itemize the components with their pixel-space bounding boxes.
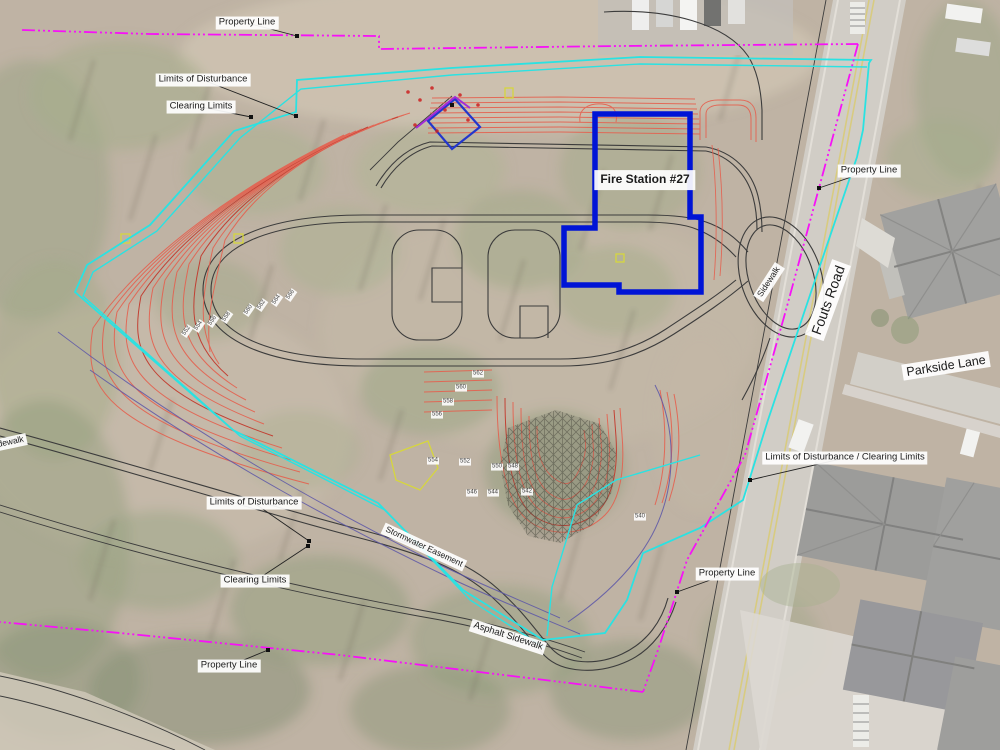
label-clearing-limits-s-anchor: [306, 544, 310, 548]
label-limits-of-disturbance-s-anchor: [307, 539, 311, 543]
label-property-line-e-anchor: [817, 186, 821, 190]
aerial-and-linework: [0, 0, 1000, 750]
label-property-line-top-anchor: [295, 34, 299, 38]
label-property-line-sw-anchor: [266, 648, 270, 652]
label-limits-of-disturbance-nw-anchor: [294, 114, 298, 118]
label-property-line-s-anchor: [675, 590, 679, 594]
label-clearing-limits-nw-anchor: [249, 115, 253, 119]
label-lod-clearing-e-anchor: [748, 478, 752, 482]
site-plan-canvas: Property LineLimits of DisturbanceCleari…: [0, 0, 1000, 750]
